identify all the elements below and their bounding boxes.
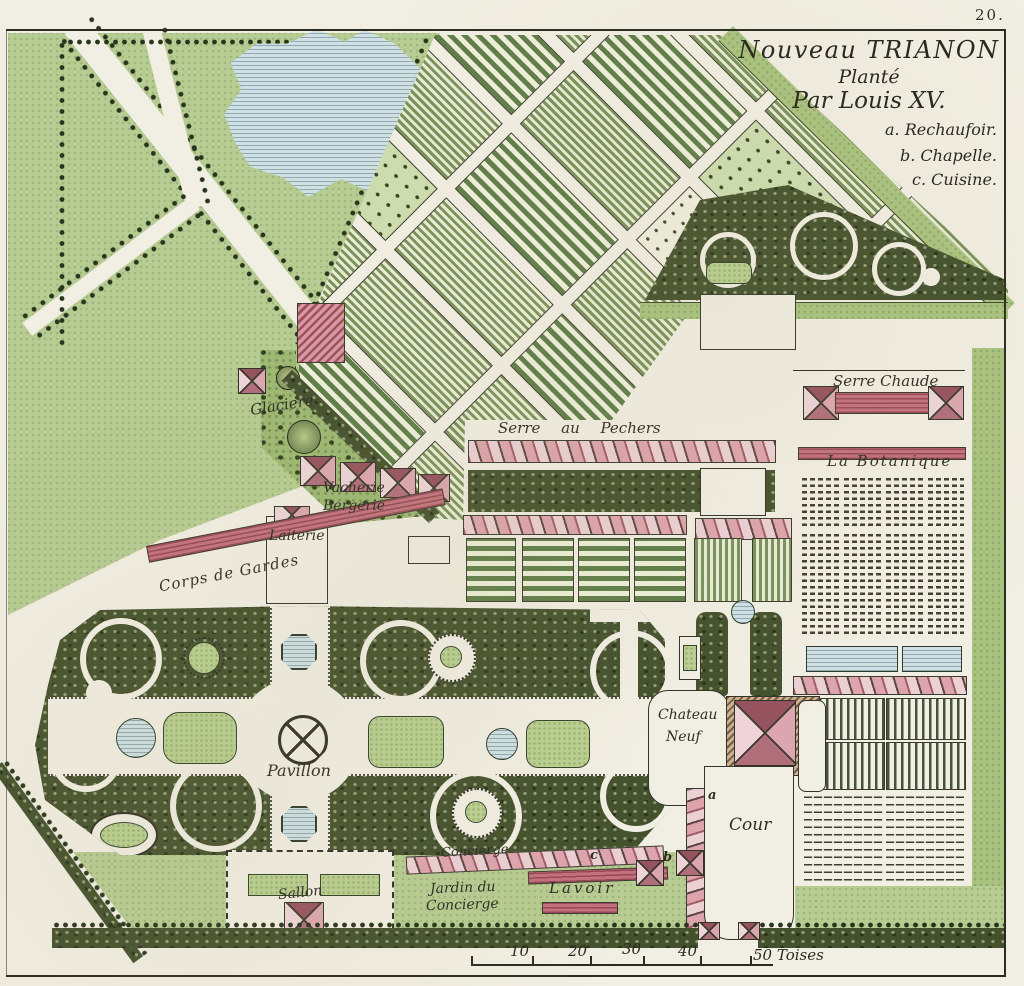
garden-bed-group	[578, 538, 630, 602]
scale-tick	[590, 956, 592, 965]
scale-bar: 10 20 30 40 50 Toises	[450, 938, 830, 978]
bosquet-south-band	[640, 302, 1008, 319]
garden-bed-group	[466, 538, 516, 602]
round-bed	[188, 642, 220, 674]
botanique-rows	[802, 530, 840, 582]
courtyard-building	[408, 536, 450, 564]
seed-bed-rows	[886, 793, 964, 888]
garden-wall	[463, 515, 687, 535]
round-bed	[440, 646, 462, 668]
scale-label-40: 40	[678, 942, 697, 960]
garden-bed-group	[634, 538, 686, 602]
label-marker-c: c	[590, 849, 598, 862]
botanique-rows	[886, 586, 924, 634]
utility-building	[700, 294, 796, 350]
scale-tick	[750, 956, 752, 965]
botanique-rows	[844, 474, 882, 526]
tree-row	[52, 921, 698, 930]
chateau-garden-bed	[750, 612, 782, 696]
rondpoint-small	[86, 680, 112, 706]
label-jardin-concierge: Concierge	[426, 897, 499, 914]
scale-line	[471, 964, 773, 966]
east-lawn-band	[972, 348, 1006, 930]
seed-bed-rows	[804, 793, 883, 888]
cold-frame	[806, 646, 898, 672]
label-lavoir: Lavoir	[549, 881, 615, 896]
utility-building	[700, 468, 766, 516]
scale-end-label: 50 Toises	[753, 946, 824, 964]
map-subtitle2: Par Louis XV.	[735, 88, 1003, 114]
map-border	[6, 29, 7, 977]
scale-label-30: 30	[622, 940, 641, 958]
parterre	[30, 600, 670, 862]
monument-bed	[683, 645, 697, 671]
scale-tick	[700, 956, 702, 965]
bosquet-clearing	[922, 268, 940, 286]
label-serre-au-pechers: Serre au Pechers	[498, 421, 661, 436]
garden-bed-group	[694, 538, 742, 602]
botanique-rows	[928, 474, 964, 526]
botanique-rows	[886, 474, 924, 526]
label-concierge: Concierge	[441, 843, 509, 860]
legend-item-a: a. Rechaufoir.	[737, 120, 997, 139]
cold-frame	[902, 646, 962, 672]
serre-chaude-pavilion	[928, 386, 964, 420]
scale-label-10: 10	[510, 942, 529, 960]
scale-tick	[532, 956, 534, 965]
garden-bed-group	[522, 538, 574, 602]
map-border	[6, 29, 1006, 31]
round-basin	[486, 728, 518, 760]
garden-bed-group	[752, 538, 792, 602]
legend-item-b: b. Chapelle.	[737, 146, 997, 165]
cour-courtyard	[704, 766, 794, 940]
round-basin	[116, 718, 156, 758]
farm-building	[297, 303, 345, 363]
east-wing-building	[798, 700, 826, 792]
botanique-rows	[844, 530, 882, 582]
legend-item-c: c. Cuisine.	[737, 170, 997, 189]
label-bergerie: Bergerie	[323, 499, 385, 513]
serre-chaude-pavilion	[803, 386, 839, 420]
nursery-rows	[886, 742, 966, 790]
bosquet-bed	[706, 262, 752, 284]
parterre-bed	[368, 716, 444, 768]
botanique-rows	[928, 530, 964, 582]
botanique-rows	[844, 586, 882, 634]
label-chateau: Chateau	[658, 708, 717, 722]
oval-bed	[100, 822, 148, 848]
cuisine-building	[676, 850, 704, 876]
label-marker-a: a	[708, 789, 716, 802]
lavoir-pavilion	[636, 860, 664, 886]
botanique-rows	[886, 530, 924, 582]
bosquet-path	[872, 242, 926, 296]
pavillon-building	[272, 708, 328, 766]
tree-row	[58, 40, 66, 350]
tree-row	[758, 921, 1006, 930]
label-la-botanique: La Botanique	[827, 454, 952, 469]
divider-line	[793, 370, 965, 371]
octagon-basin	[281, 634, 317, 670]
serre-au-pechers-building	[468, 440, 776, 463]
scale-label-20: 20	[568, 942, 587, 960]
map-canvas: Glaciere Vacherie Bergerie Laiterie Corp…	[0, 0, 1024, 986]
map-subtitle: Planté	[735, 66, 1003, 88]
label-cour: Cour	[729, 817, 771, 834]
nursery-rows	[886, 698, 966, 740]
label-serre-chaude: Serre Chaude	[833, 374, 938, 389]
title-block: Nouveau TRIANON Planté Par Louis XV. a. …	[735, 36, 1003, 196]
page-number: 20.	[975, 8, 1005, 23]
scale-tick	[471, 956, 473, 965]
label-neuf: Neuf	[666, 730, 701, 744]
chapelle-roof	[734, 700, 796, 766]
botanique-rows	[928, 586, 964, 634]
parterre-bed	[163, 712, 237, 764]
lavoir-wall	[542, 902, 618, 914]
octagon-basin	[281, 806, 317, 842]
parterre-bed	[526, 720, 590, 768]
label-laiterie: Laiterie	[269, 529, 325, 543]
garden-monument	[679, 636, 701, 680]
round-basin	[731, 600, 755, 624]
serre-chaude-building	[835, 392, 932, 414]
garden-wall	[695, 518, 792, 540]
label-pavillon: Pavillon	[267, 763, 331, 779]
sallon-bed	[320, 874, 380, 896]
bosquet-path	[790, 212, 858, 280]
label-marker-b: b	[663, 851, 672, 864]
botanique-rows	[802, 586, 840, 634]
round-bed	[465, 801, 487, 823]
scale-tick	[643, 956, 645, 965]
label-vacherie: Vacherie	[323, 481, 385, 495]
garden-wall	[793, 676, 967, 695]
icehouse	[287, 420, 321, 454]
roof-pavilion	[238, 368, 266, 394]
parterre-path	[50, 720, 122, 792]
parterre-path	[620, 608, 638, 703]
label-jardin-du: Jardin du	[430, 880, 496, 896]
parterre-path	[170, 760, 262, 852]
map-title: Nouveau TRIANON	[735, 36, 1003, 64]
botanique-rows	[802, 474, 840, 526]
map-border	[1004, 29, 1006, 977]
